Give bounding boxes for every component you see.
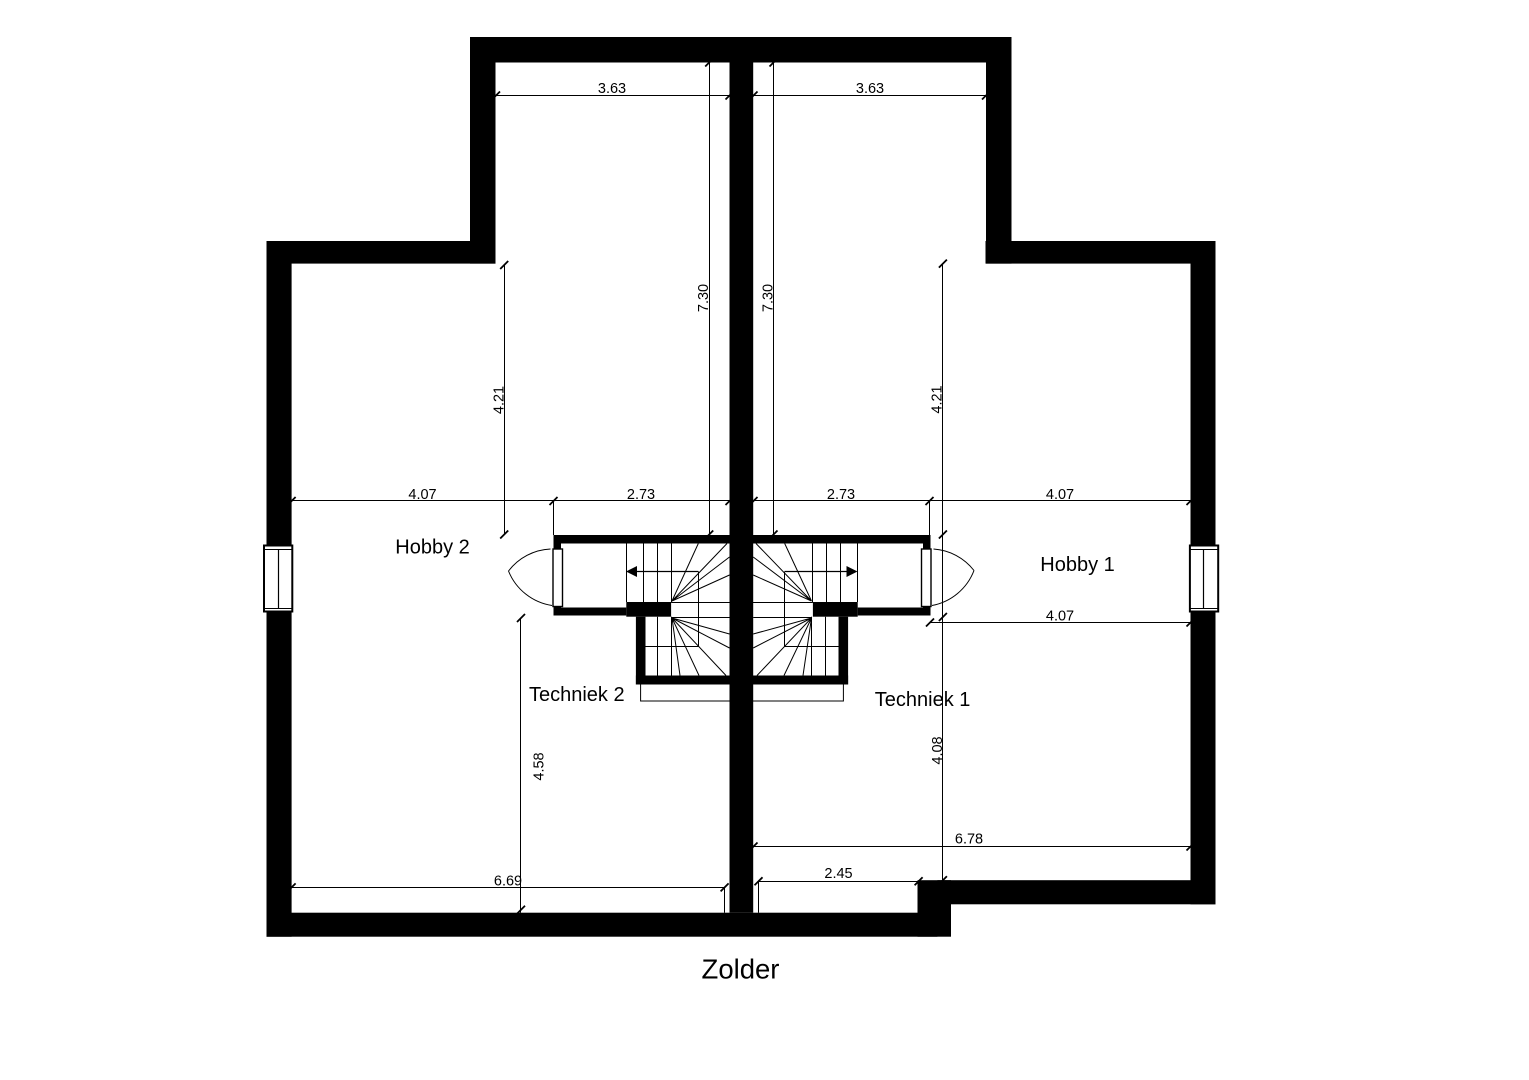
svg-text:4.21: 4.21	[492, 386, 508, 414]
svg-text:3.63: 3.63	[856, 81, 884, 97]
svg-text:Techniek 2: Techniek 2	[529, 684, 625, 706]
svg-text:6.69: 6.69	[494, 874, 522, 890]
svg-text:Zolder: Zolder	[702, 954, 780, 985]
svg-text:Hobby 1: Hobby 1	[1040, 554, 1115, 576]
svg-text:4.07: 4.07	[1046, 487, 1074, 503]
svg-text:4.21: 4.21	[930, 385, 946, 413]
svg-text:2.45: 2.45	[824, 866, 852, 882]
svg-text:2.73: 2.73	[627, 487, 655, 503]
svg-text:4.58: 4.58	[532, 752, 548, 780]
svg-text:4.08: 4.08	[930, 736, 946, 764]
svg-text:6.78: 6.78	[955, 832, 983, 848]
svg-text:Techniek 1: Techniek 1	[875, 689, 971, 711]
svg-text:7.30: 7.30	[761, 284, 777, 312]
svg-text:2.73: 2.73	[827, 487, 855, 503]
svg-text:4.07: 4.07	[1046, 609, 1074, 625]
svg-text:3.63: 3.63	[598, 81, 626, 97]
svg-text:7.30: 7.30	[696, 284, 712, 312]
svg-text:4.07: 4.07	[408, 487, 436, 503]
svg-text:Hobby 2: Hobby 2	[395, 537, 470, 559]
